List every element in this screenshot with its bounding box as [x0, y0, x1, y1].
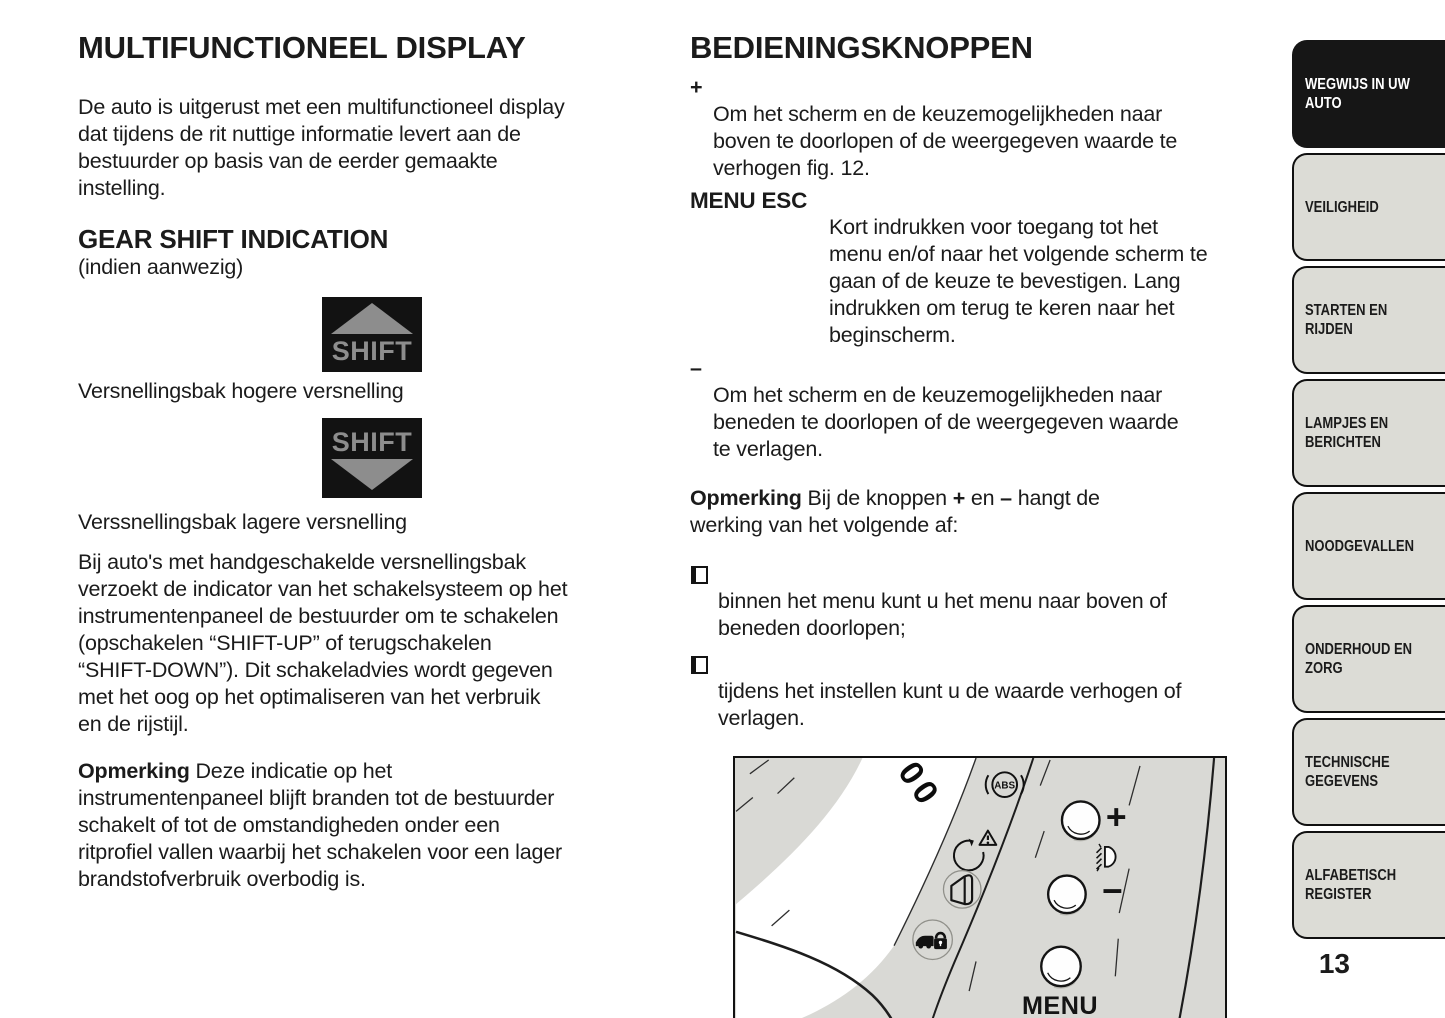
shift-up-caption: Versnellingsbak hogere versnelling	[78, 378, 666, 405]
bullet-item: tijdens het instellen kunt u de waarde v…	[690, 651, 1268, 732]
minus-button-item: –Om het scherm en de keuzemogelijkheden …	[690, 355, 1268, 463]
menu-esc-button-drawing	[1041, 946, 1081, 987]
controls-note-text: Bij de knoppen	[807, 486, 946, 510]
menu-button-label: MENU	[1022, 991, 1098, 1018]
note-label: Opmerking	[78, 759, 190, 783]
plus-item-text: Om het scherm en de keuzemogelijkheden n…	[713, 102, 1177, 180]
minus-glyph: –	[1000, 486, 1012, 510]
square-bullet-icon	[691, 566, 708, 584]
shift-up-icon-label: SHIFT	[332, 336, 413, 366]
controls-note: Opmerking Bij de knoppen + en – hangt de…	[690, 485, 1268, 539]
shift-down-icon-label: SHIFT	[332, 427, 413, 457]
minus-marker: –	[690, 355, 702, 382]
right-column: BEDIENINGSKNOPPEN +Om het scherm en de k…	[690, 30, 1268, 1018]
sidebar-tab-label: ONDERHOUD EN ZORG	[1305, 640, 1423, 678]
manual-page: MULTIFUNCTIONEEL DISPLAY De auto is uitg…	[0, 0, 1445, 1018]
controls-note-text2: en	[971, 486, 995, 510]
figure-12-image: 00 ABS	[733, 756, 1227, 1018]
sidebar-tab-starten-en-rijden[interactable]: STARTEN EN RIJDEN	[1292, 266, 1445, 374]
minus-button-label: −	[1102, 871, 1123, 911]
sidebar-tab-label: TECHNISCHE GEGEVENS	[1305, 753, 1423, 791]
plus-button-item: +Om het scherm en de keuzemogelijkheden …	[690, 74, 1268, 182]
sidebar-tab-technische-gegevens[interactable]: TECHNISCHE GEGEVENS	[1292, 718, 1445, 826]
menu-esc-item: MENU ESCKort indrukken voor toegang tot …	[690, 187, 1268, 349]
bullet-item: binnen het menu kunt u het menu naar bov…	[690, 561, 1268, 642]
sidebar-tab-veiligheid[interactable]: VEILIGHEID	[1292, 153, 1445, 261]
sidebar-tab-lampjes-en-berichten[interactable]: LAMPJES EN BERICHTEN	[1292, 379, 1445, 487]
sidebar-tab-alfabetisch-register[interactable]: ALFABETISCH REGISTER	[1292, 831, 1445, 939]
square-bullet-icon	[691, 656, 708, 674]
sidebar-tab-label: VEILIGHEID	[1305, 198, 1423, 217]
menu-esc-item-text: Kort indrukken voor toegang tot het menu…	[829, 215, 1207, 347]
minus-item-text: Om het scherm en de keuzemogelijkheden n…	[713, 383, 1179, 461]
shift-up-arrow-icon	[331, 303, 413, 334]
sidebar-tab-label: STARTEN EN RIJDEN	[1305, 301, 1423, 339]
plus-button-label: +	[1106, 797, 1127, 837]
intro-paragraph: De auto is uitgerust met een multifuncti…	[78, 94, 666, 202]
bullet-text: binnen het menu kunt u het menu naar bov…	[718, 589, 1167, 640]
sidebar-tab-label: NOODGEVALLEN	[1305, 537, 1423, 556]
section-subtitle: (indien aanwezig)	[78, 254, 666, 281]
shift-up-icon: SHIFT	[322, 297, 422, 372]
section-title-controls: BEDIENINGSKNOPPEN	[690, 30, 1268, 66]
plus-marker: +	[690, 74, 702, 101]
shift-down-icon: SHIFT	[322, 418, 422, 498]
bullet-text: tijdens het instellen kunt u de waarde v…	[718, 679, 1181, 730]
plus-glyph: +	[953, 486, 965, 510]
page-number: 13	[1319, 948, 1350, 980]
sidebar-tab-label: WEGWIJS IN UW AUTO	[1305, 75, 1423, 113]
sidebar-tab-noodgevallen[interactable]: NOODGEVALLEN	[1292, 492, 1445, 600]
plus-button-drawing	[1062, 801, 1100, 840]
minus-button-drawing	[1048, 875, 1086, 914]
shift-down-arrow-icon	[331, 459, 413, 490]
abs-icon-label: ABS	[994, 780, 1015, 791]
section-title: GEAR SHIFT INDICATION	[78, 224, 666, 254]
note-paragraph: Opmerking Deze indicatie op het instrume…	[78, 758, 666, 893]
instrument-cluster-drawing: 00 ABS	[735, 758, 1225, 1018]
sidebar-tab-label: LAMPJES EN BERICHTEN	[1305, 414, 1423, 452]
controls-note-label: Opmerking	[690, 486, 802, 510]
page-title: MULTIFUNCTIONEEL DISPLAY	[78, 30, 666, 66]
body-paragraph: Bij auto's met handgeschakelde versnelli…	[78, 549, 666, 738]
sidebar-tab-label: ALFABETISCH REGISTER	[1305, 866, 1423, 904]
shift-down-caption: Verssnellingsbak lagere versnelling	[78, 509, 666, 536]
section-tab-sidebar: WEGWIJS IN UW AUTO VEILIGHEID STARTEN EN…	[1292, 40, 1445, 944]
figure-12-wrapper: 00 ABS	[733, 756, 1227, 1018]
menu-esc-marker: MENU ESC	[690, 187, 807, 214]
sidebar-tab-wegwijs-in-uw-auto[interactable]: WEGWIJS IN UW AUTO	[1292, 40, 1445, 148]
sidebar-tab-onderhoud-en-zorg[interactable]: ONDERHOUD EN ZORG	[1292, 605, 1445, 713]
left-column: MULTIFUNCTIONEEL DISPLAY De auto is uitg…	[78, 30, 666, 893]
